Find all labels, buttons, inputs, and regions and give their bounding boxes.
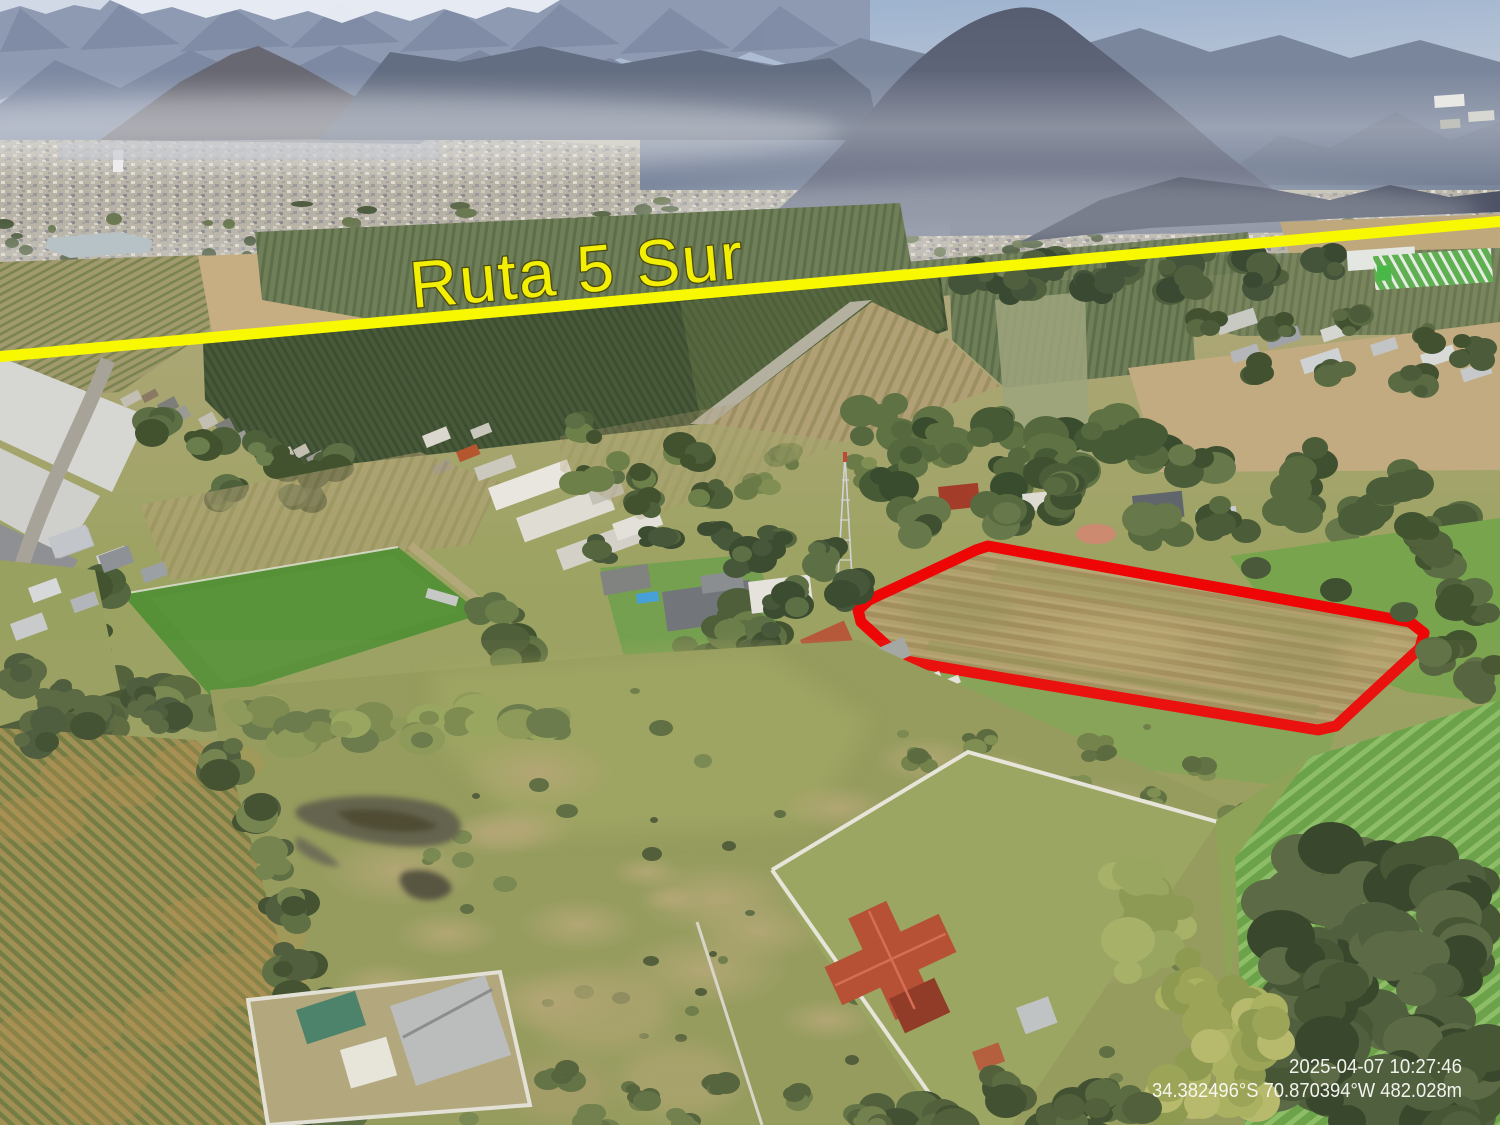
svg-text:34.382496°S 70.870394°W 482.02: 34.382496°S 70.870394°W 482.028m bbox=[1152, 1080, 1462, 1102]
svg-text:2025-04-07 10:27:46: 2025-04-07 10:27:46 bbox=[1289, 1056, 1462, 1078]
